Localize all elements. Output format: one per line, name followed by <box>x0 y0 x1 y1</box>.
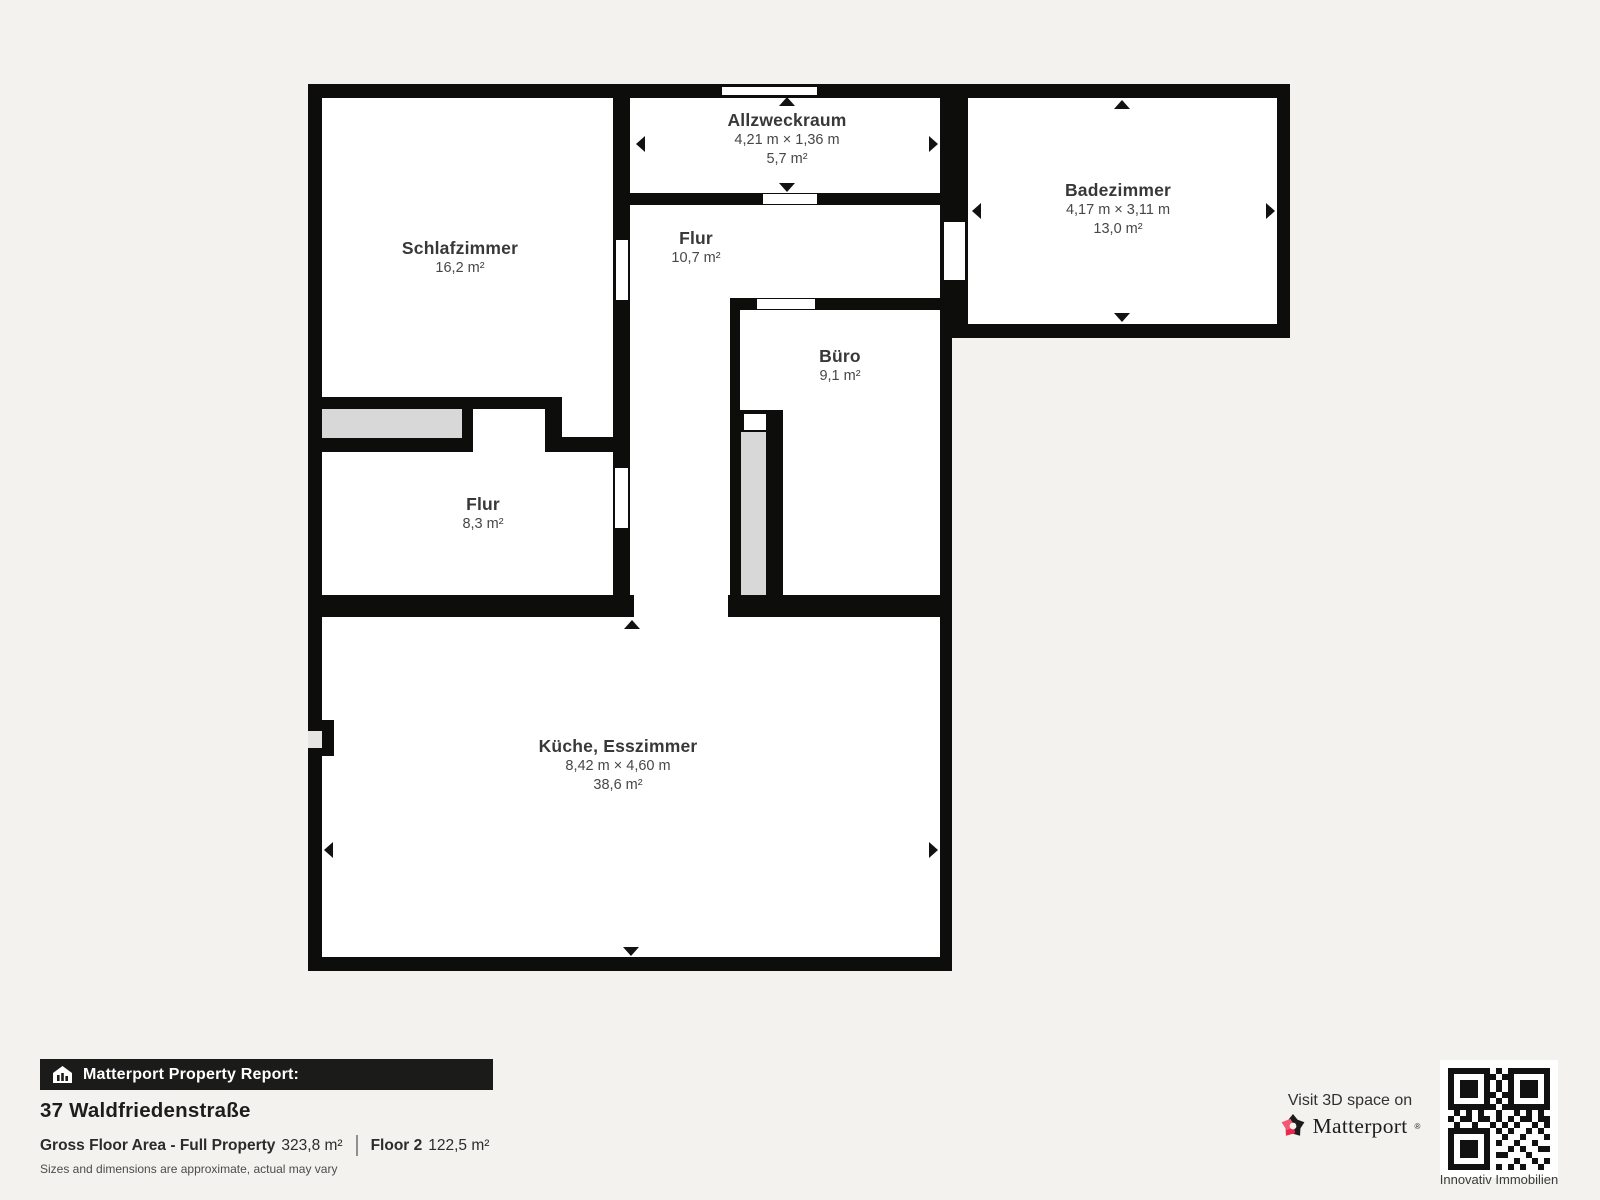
wall-kueche-top-right <box>728 595 952 617</box>
room-name: Schlafzimmer <box>402 238 518 259</box>
wall-below-stairs <box>308 438 473 452</box>
opening-corridor-kueche <box>634 595 728 617</box>
wall-kueche-top-left <box>308 595 634 617</box>
shaft-area <box>741 432 766 595</box>
door-allzweckraum <box>763 194 817 204</box>
room-name: Badezimmer <box>1065 180 1171 201</box>
room-label-allzweckraum: Allzweckraum 4,21 m × 1,36 m 5,7 m² <box>727 110 846 169</box>
qr-code-pattern <box>1440 1060 1558 1178</box>
matterport-pinwheel-icon <box>1280 1113 1306 1139</box>
door-badezimmer <box>944 222 965 280</box>
report-banner: Matterport Property Report: <box>40 1059 493 1090</box>
kueche-left-window <box>308 731 322 748</box>
area-summary: Gross Floor Area - Full Property 323,8 m… <box>40 1135 489 1156</box>
wall-bath-right <box>1277 84 1290 338</box>
wall-buero-left <box>730 310 740 617</box>
wall-kueche-nub <box>322 720 334 756</box>
wall-alcove-bottom <box>562 437 630 452</box>
wall-schlafzimmer-bottom <box>322 397 562 409</box>
door-buero <box>757 299 815 309</box>
wall-left <box>308 84 322 971</box>
wall-notch-right <box>545 397 562 452</box>
matterport-floor-plan-page: { "colors": { "background": "#f4f2ef", "… <box>0 0 1600 1200</box>
qr-code <box>1440 1060 1558 1178</box>
wall-stairs-right <box>462 409 473 452</box>
room-area: 16,2 m² <box>402 259 518 278</box>
house-report-icon <box>53 1066 72 1083</box>
room-dimensions: 4,21 m × 1,36 m <box>727 131 846 150</box>
room-label-kueche: Küche, Esszimmer 8,42 m × 4,60 m 38,6 m² <box>539 736 698 795</box>
door-schlafzimmer <box>616 240 628 300</box>
room-area: 38,6 m² <box>539 776 698 795</box>
room-label-buero: Büro 9,1 m² <box>819 346 861 386</box>
property-address: 37 Waldfriedenstraße <box>40 1099 251 1123</box>
disclaimer-text: Sizes and dimensions are approximate, ac… <box>40 1162 337 1176</box>
wall-bottom <box>308 957 952 971</box>
visit-3d-text: Visit 3D space on <box>1255 1092 1445 1110</box>
window-allzweckraum <box>722 87 817 95</box>
qr-finder-top-right <box>1508 1068 1550 1110</box>
trademark-mark: ® <box>1415 1122 1421 1131</box>
floor-plan <box>0 0 1600 1200</box>
room-name: Flur <box>671 228 720 249</box>
wall-bath-left <box>940 98 968 324</box>
room-area: 8,3 m² <box>462 515 503 534</box>
matterport-wordmark: Matterport <box>1313 1114 1408 1139</box>
wall-bath-bottom <box>952 324 1290 338</box>
gfa-label: Gross Floor Area - Full Property <box>40 1137 275 1155</box>
floor-value: 122,5 m² <box>428 1137 489 1155</box>
qr-finder-top-left <box>1448 1068 1490 1110</box>
room-area: 10,7 m² <box>671 249 720 268</box>
room-dimensions: 8,42 m × 4,60 m <box>539 757 698 776</box>
room-dimensions: 4,17 m × 3,11 m <box>1065 201 1171 220</box>
room-label-flur-klein: Flur 8,3 m² <box>462 494 503 534</box>
room-name: Büro <box>819 346 861 367</box>
divider <box>356 1135 358 1156</box>
gfa-value: 323,8 m² <box>281 1137 342 1155</box>
stairs-area <box>322 409 462 438</box>
room-label-schlafzimmer: Schlafzimmer 16,2 m² <box>402 238 518 278</box>
room-area: 5,7 m² <box>727 150 846 169</box>
qr-caption: Innovativ Immobilien <box>1440 1172 1559 1187</box>
qr-finder-bottom-left <box>1448 1128 1490 1170</box>
room-label-flur-og: Flur 10,7 m² <box>671 228 720 268</box>
room-area: 13,0 m² <box>1065 220 1171 239</box>
banner-title: Matterport Property Report: <box>83 1066 299 1084</box>
room-name: Küche, Esszimmer <box>539 736 698 757</box>
room-name: Flur <box>462 494 503 515</box>
floor-label: Floor 2 <box>371 1137 423 1155</box>
shaft-niche <box>744 414 766 430</box>
matterport-logo: Matterport® <box>1255 1113 1445 1139</box>
room-name: Allzweckraum <box>727 110 846 131</box>
door-flur-klein <box>615 468 628 528</box>
room-label-badezimmer: Badezimmer 4,17 m × 3,11 m 13,0 m² <box>1065 180 1171 239</box>
room-area: 9,1 m² <box>819 367 861 386</box>
